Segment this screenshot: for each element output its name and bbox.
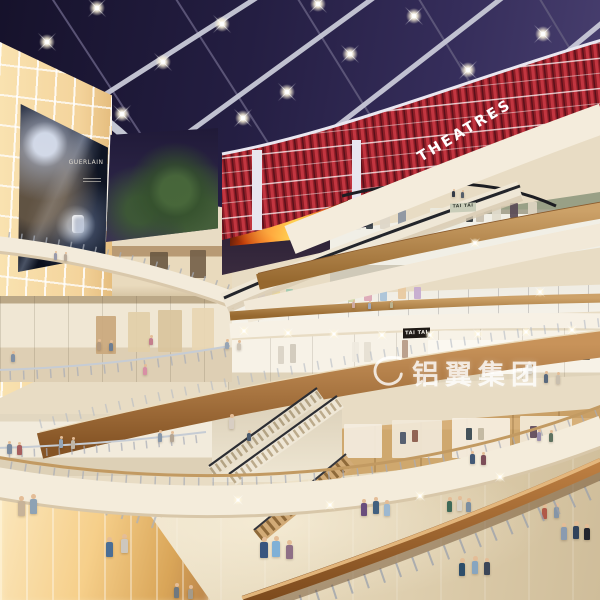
person-figure: [7, 441, 12, 454]
person-head: [72, 437, 75, 440]
person-figure: [561, 523, 567, 540]
person-body: [447, 501, 452, 512]
person-head: [538, 429, 541, 432]
person-body: [549, 433, 553, 442]
person-body: [121, 539, 128, 553]
person-head: [545, 371, 548, 374]
person-head: [482, 452, 485, 455]
person-body: [452, 191, 455, 197]
person-head: [562, 523, 566, 527]
person-body: [542, 508, 547, 519]
person-figure: [174, 583, 179, 598]
person-head: [31, 494, 36, 499]
person-head: [550, 430, 553, 433]
person-head: [65, 252, 67, 254]
person-figure: [158, 430, 162, 442]
person-figure: [573, 521, 579, 539]
person-body: [390, 302, 393, 308]
person-head: [555, 503, 559, 507]
person-body: [554, 507, 559, 518]
person-head: [453, 189, 455, 191]
person-head: [248, 430, 251, 433]
person-head: [391, 300, 393, 302]
person-figure: [556, 372, 560, 384]
person-body: [109, 343, 113, 351]
person-figure: [59, 436, 63, 448]
person-head: [467, 498, 471, 502]
person-figure: [537, 429, 541, 441]
person-head: [19, 496, 24, 501]
person-head: [543, 504, 547, 508]
person-head: [528, 361, 531, 364]
person-figure: [542, 504, 547, 519]
person-head: [171, 431, 174, 434]
person-figure: [11, 351, 15, 362]
person-figure: [472, 556, 478, 574]
person-body: [260, 542, 268, 558]
person-figure: [149, 335, 153, 345]
person-body: [149, 338, 153, 345]
person-figure: [459, 558, 465, 576]
person-body: [106, 542, 113, 557]
person-body: [361, 503, 367, 516]
person-figure: [170, 431, 174, 442]
person-figure: [97, 339, 101, 350]
person-body: [459, 563, 465, 576]
person-head: [107, 537, 112, 542]
person-figure: [390, 300, 393, 308]
person-body: [384, 504, 390, 516]
person-head: [98, 339, 101, 342]
person-figure: [484, 558, 490, 575]
person-head: [585, 524, 589, 528]
person-figure: [247, 430, 251, 441]
person-figure: [143, 364, 147, 375]
person-body: [556, 375, 560, 384]
person-head: [460, 558, 465, 563]
person-head: [238, 340, 241, 343]
person-head: [175, 583, 179, 587]
person-figure: [549, 430, 553, 442]
person-body: [286, 545, 293, 559]
person-body: [18, 501, 25, 516]
person-body: [466, 502, 471, 512]
person-body: [272, 541, 280, 557]
person-body: [188, 589, 193, 599]
person-figure: [272, 536, 280, 557]
person-figure: [373, 497, 379, 514]
person-figure: [121, 534, 128, 553]
person-figure: [352, 300, 355, 308]
person-head: [374, 497, 378, 501]
person-head: [18, 442, 21, 445]
person-figure: [461, 190, 464, 198]
person-figure: [584, 524, 590, 540]
person-body: [373, 501, 379, 514]
person-figure: [361, 499, 367, 516]
person-body: [481, 455, 486, 465]
person-body: [64, 254, 67, 261]
person-head: [274, 536, 279, 541]
person-body: [247, 433, 251, 441]
person-body: [97, 342, 101, 350]
person-body: [17, 445, 22, 455]
person-head: [462, 190, 464, 192]
person-head: [287, 540, 292, 545]
person-head: [144, 364, 147, 367]
person-head: [110, 340, 113, 343]
person-body: [352, 302, 355, 308]
person-figure: [225, 339, 229, 349]
person-head: [557, 372, 560, 375]
person-head: [369, 301, 371, 303]
person-head: [262, 537, 267, 542]
person-head: [362, 499, 366, 503]
person-figure: [554, 503, 559, 518]
person-figure: [457, 496, 462, 511]
person-head: [485, 558, 489, 562]
person-body: [237, 343, 241, 350]
person-figure: [368, 301, 371, 309]
person-figure: [470, 451, 475, 464]
person-figure: [384, 500, 390, 516]
person-head: [458, 496, 462, 500]
person-body: [143, 367, 147, 375]
person-figure: [229, 414, 234, 429]
person-body: [30, 499, 37, 514]
person-figure: [188, 585, 193, 599]
person-head: [448, 497, 452, 501]
person-figure: [30, 494, 37, 514]
mall-atrium-rendering: GUERLAIN THEATRES: [0, 0, 600, 600]
person-body: [170, 434, 174, 442]
person-head: [471, 451, 474, 454]
person-body: [472, 561, 478, 574]
people-layer: [0, 0, 600, 600]
person-head: [122, 534, 127, 539]
person-head: [385, 500, 389, 504]
person-body: [561, 527, 567, 540]
person-body: [457, 500, 462, 511]
person-body: [11, 354, 15, 362]
person-figure: [260, 537, 268, 558]
person-body: [7, 444, 12, 454]
person-body: [158, 433, 162, 442]
person-figure: [286, 540, 293, 559]
person-body: [71, 440, 75, 449]
person-body: [461, 192, 464, 198]
person-body: [54, 253, 57, 260]
person-head: [12, 351, 15, 354]
person-figure: [106, 537, 113, 557]
person-figure: [17, 442, 22, 455]
person-figure: [481, 452, 486, 465]
person-body: [527, 364, 532, 374]
person-body: [484, 562, 490, 575]
person-figure: [447, 497, 452, 512]
person-figure: [109, 340, 113, 351]
person-figure: [452, 189, 455, 197]
person-body: [573, 526, 579, 539]
person-body: [225, 342, 229, 349]
person-figure: [544, 371, 548, 383]
person-body: [537, 432, 541, 441]
person-head: [189, 585, 193, 589]
person-head: [230, 414, 234, 418]
person-body: [544, 374, 548, 383]
person-body: [368, 303, 371, 309]
person-head: [150, 335, 153, 338]
person-head: [226, 339, 229, 342]
person-head: [353, 300, 355, 302]
person-figure: [466, 498, 471, 512]
person-head: [55, 251, 57, 253]
person-body: [174, 587, 179, 598]
person-body: [584, 528, 590, 540]
person-body: [229, 418, 234, 429]
person-head: [159, 430, 162, 433]
person-figure: [527, 361, 532, 374]
person-head: [574, 521, 579, 526]
person-figure: [18, 496, 25, 516]
person-figure: [64, 252, 67, 261]
person-body: [59, 439, 63, 448]
person-head: [8, 441, 11, 444]
person-figure: [71, 437, 75, 449]
person-body: [470, 454, 475, 464]
person-head: [473, 556, 478, 561]
person-head: [60, 436, 63, 439]
person-figure: [54, 251, 57, 260]
person-figure: [237, 340, 241, 350]
